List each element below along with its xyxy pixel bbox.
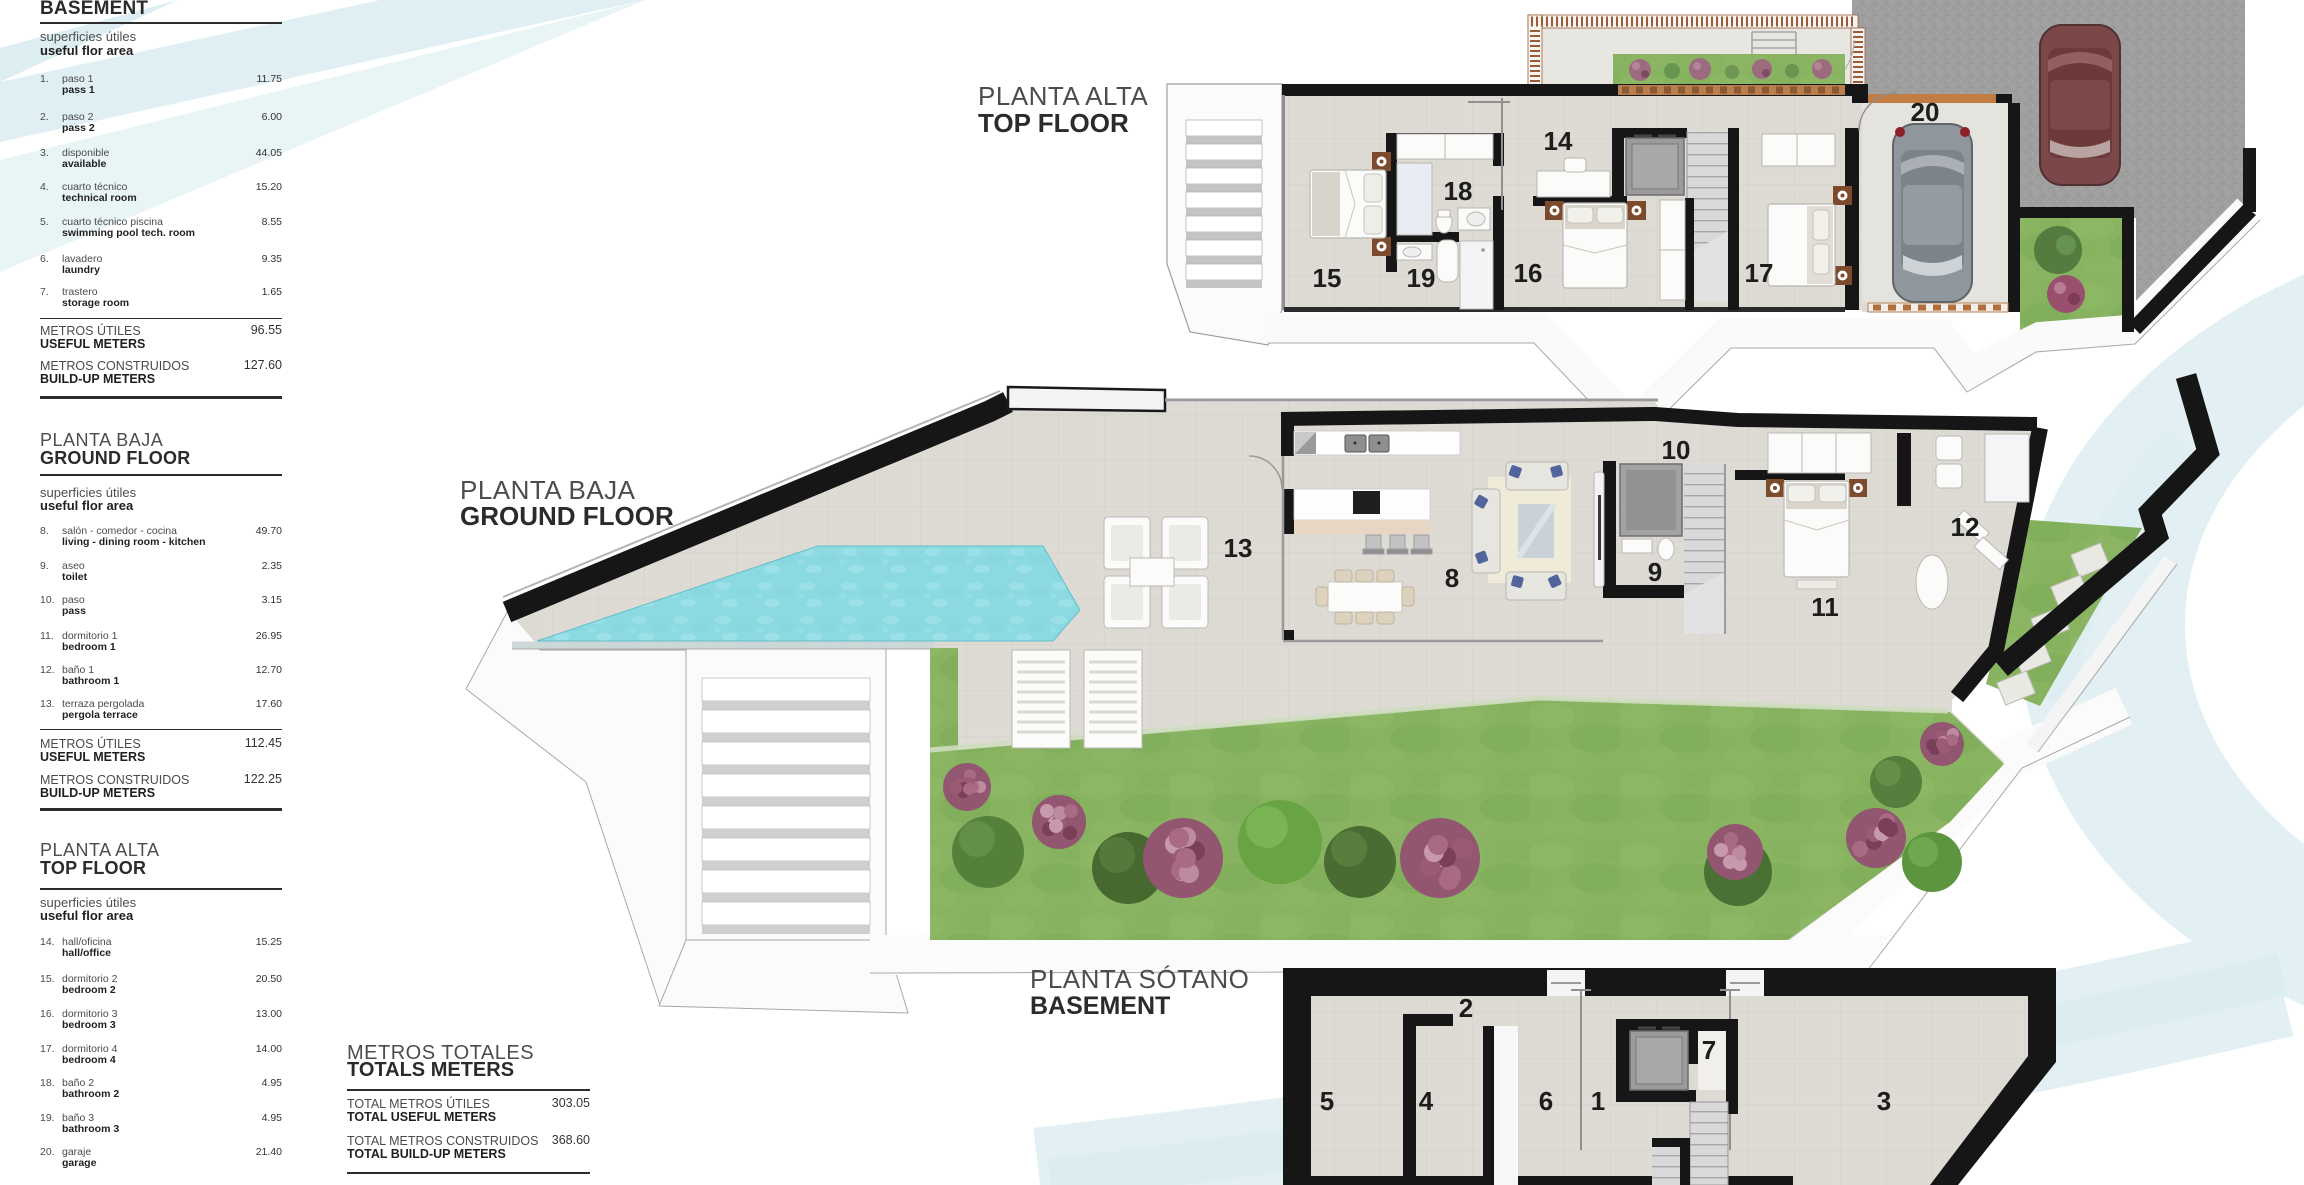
svg-text:3: 3 (1877, 1086, 1891, 1116)
svg-text:13: 13 (1224, 533, 1253, 563)
svg-text:4: 4 (1419, 1086, 1434, 1116)
svg-text:10: 10 (1662, 435, 1691, 465)
svg-text:15: 15 (1313, 263, 1342, 293)
svg-text:6: 6 (1539, 1086, 1553, 1116)
svg-text:11: 11 (1811, 592, 1839, 622)
svg-text:5: 5 (1320, 1086, 1334, 1116)
svg-text:20: 20 (1911, 97, 1940, 127)
svg-text:7: 7 (1702, 1035, 1716, 1065)
svg-text:1: 1 (1591, 1086, 1605, 1116)
svg-text:9: 9 (1648, 557, 1662, 587)
svg-text:12: 12 (1951, 512, 1980, 542)
svg-text:16: 16 (1514, 258, 1543, 288)
svg-text:8: 8 (1445, 563, 1459, 593)
svg-text:19: 19 (1407, 263, 1436, 293)
svg-text:17: 17 (1745, 258, 1774, 288)
svg-text:18: 18 (1444, 176, 1473, 206)
svg-text:2: 2 (1459, 993, 1473, 1023)
svg-text:14: 14 (1544, 126, 1573, 156)
